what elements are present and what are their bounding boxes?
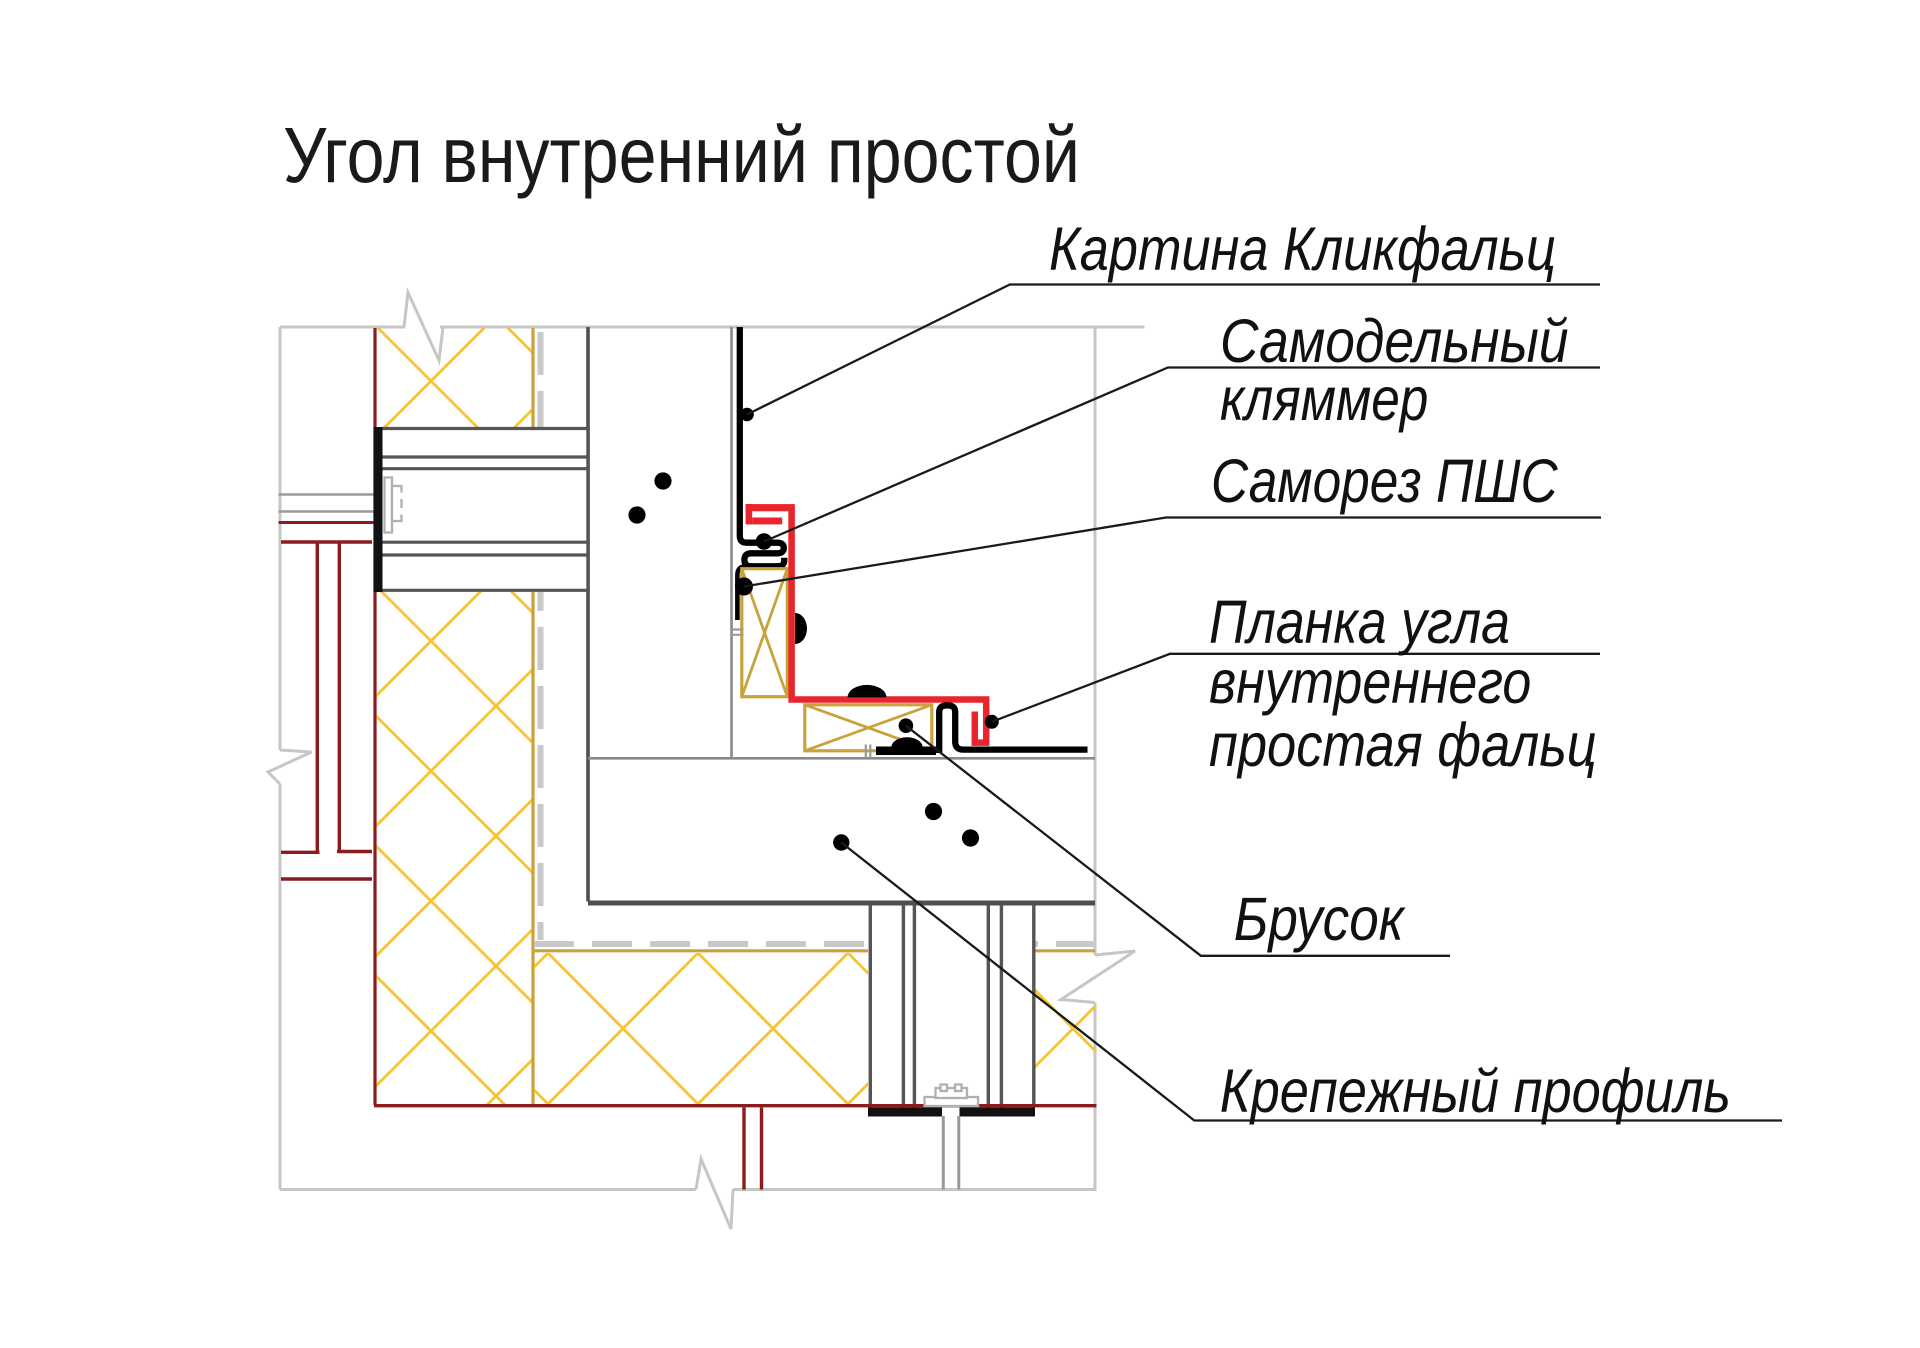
svg-text:кляммер: кляммер bbox=[1220, 365, 1428, 433]
svg-text:Картина Кликфальц: Картина Кликфальц bbox=[1049, 215, 1556, 283]
svg-text:Планка угла: Планка угла bbox=[1209, 588, 1510, 656]
svg-text:внутреннего: внутреннего bbox=[1209, 648, 1531, 716]
svg-text:Угол внутренний простой: Угол внутренний простой bbox=[283, 110, 1080, 199]
svg-text:Крепежный профиль: Крепежный профиль bbox=[1220, 1057, 1731, 1125]
svg-text:Саморез ПШС: Саморез ПШС bbox=[1211, 447, 1558, 515]
svg-text:Брусок: Брусок bbox=[1234, 885, 1406, 953]
svg-text:простая фальц: простая фальц bbox=[1209, 711, 1597, 779]
